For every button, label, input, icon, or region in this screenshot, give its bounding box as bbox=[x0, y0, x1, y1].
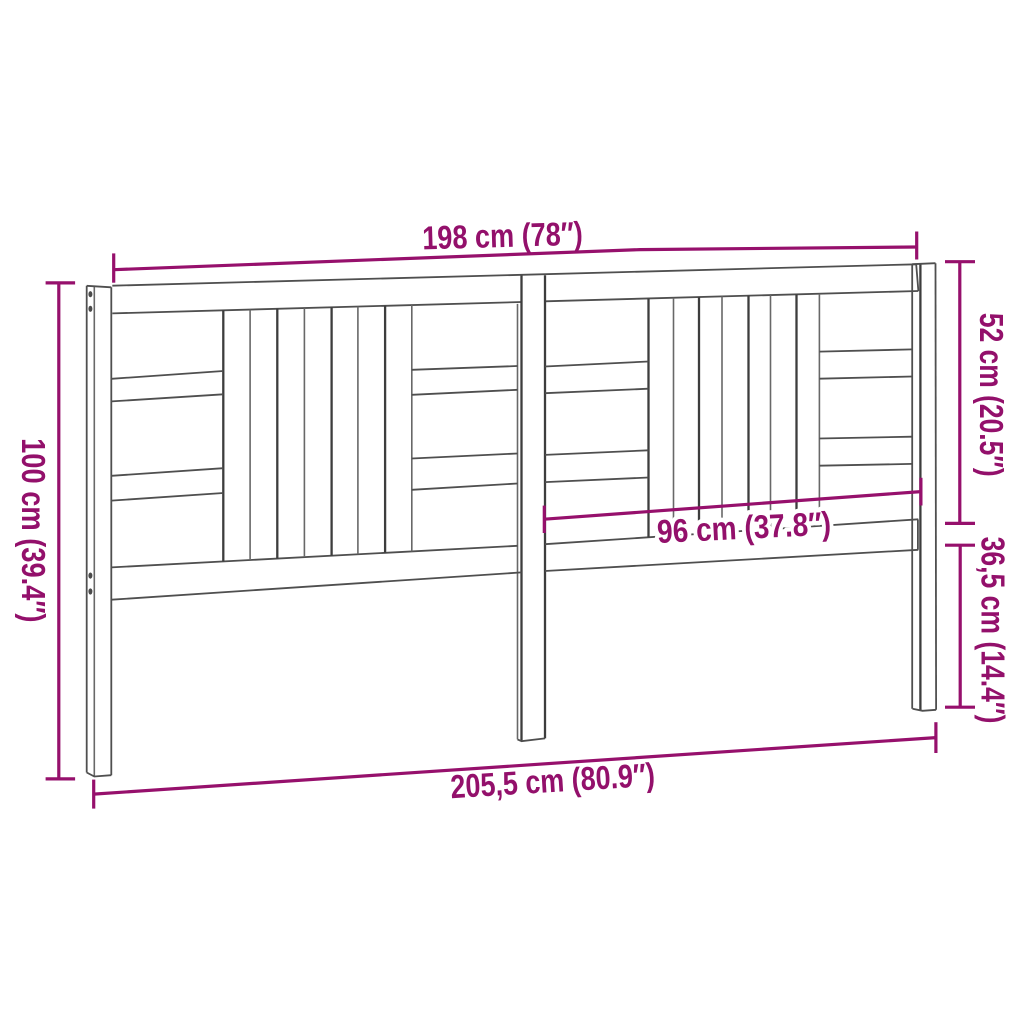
svg-text:198 cm (78″): 198 cm (78″) bbox=[422, 215, 584, 257]
svg-text:52 cm (20.5″): 52 cm (20.5″) bbox=[973, 313, 1010, 477]
svg-text:36,5 cm (14.4″): 36,5 cm (14.4″) bbox=[974, 537, 1011, 724]
svg-text:100 cm (39.4″): 100 cm (39.4″) bbox=[15, 438, 52, 622]
